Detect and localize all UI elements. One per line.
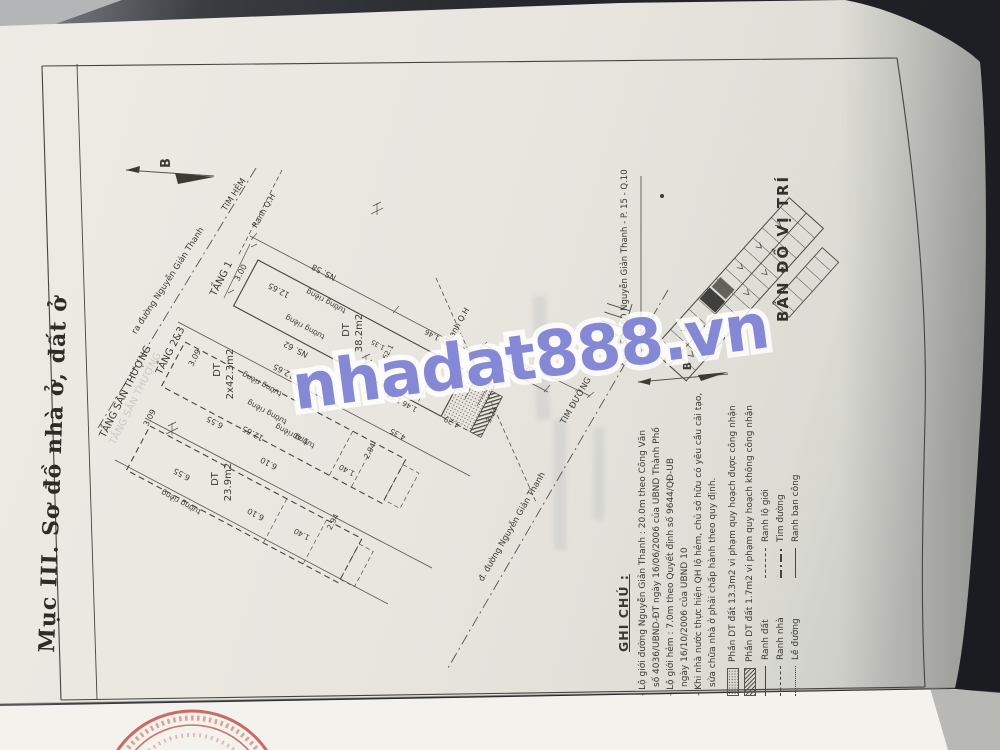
legend-label: Ranh đất bbox=[761, 578, 771, 660]
legend-label: Tim đường bbox=[776, 494, 786, 542]
area-value-f23: 2x42.3m2 bbox=[225, 349, 236, 400]
area-dt-fst: DT bbox=[210, 471, 221, 486]
legend-label: Ranh nhà bbox=[776, 578, 786, 660]
notes-title: GHI CHÚ : bbox=[616, 382, 631, 652]
house-number-line: NHÀ SỐ : 60 Nguyễn Giản Thanh - P. 15 - … bbox=[620, 166, 630, 366]
legend-line-dash bbox=[780, 666, 783, 696]
note-line: - Lộ giới hẻm : 7.0m theo Quyết định số … bbox=[664, 382, 678, 696]
paper-edge-shade bbox=[830, 0, 1000, 750]
legend-line-dashdot bbox=[780, 548, 781, 578]
area-value-f1: 38.2m2 bbox=[354, 314, 365, 352]
north-label: B bbox=[159, 158, 174, 168]
photo-of-land-document: B TIM HẺM ra đường Nguyễn Giản Thanh Ran… bbox=[0, 0, 1000, 750]
legend-label: Phần DT đất 13.3m2 vi phạm quy hoạch đượ… bbox=[728, 405, 738, 662]
notes-block: GHI CHÚ : - Lộ giới đường Nguyễn Giản Th… bbox=[616, 382, 806, 696]
area-dt-f1: DT bbox=[341, 322, 352, 337]
legend-line-dashed bbox=[765, 548, 768, 578]
legend-line-thin bbox=[795, 548, 798, 578]
note-line: - Khi nhà nước thực hiện QH lộ hẻm, chủ … bbox=[692, 382, 706, 696]
legend-label: Lề đường bbox=[791, 578, 801, 660]
document-drawing: B TIM HẺM ra đường Nguyễn Giản Thanh Ran… bbox=[0, 0, 1000, 750]
area-value-fst: 23.9m2 bbox=[223, 463, 234, 501]
legend-label: Ranh ban công bbox=[791, 474, 801, 542]
note-line: sửa chữa nhà ở phải chấp hành theo quy đ… bbox=[706, 382, 720, 696]
note-line: số 4036/UBND-ĐT ngày 16/06/2006 của UBND… bbox=[650, 382, 664, 696]
note-line: - Lộ giới đường Nguyễn Giản Thanh : 20.0… bbox=[636, 382, 650, 696]
legend-swatch-hatched-area bbox=[744, 668, 756, 696]
legend-swatch-dotted-area bbox=[727, 668, 739, 696]
legend-line-solid bbox=[765, 666, 768, 696]
area-dt-f23: DT bbox=[212, 362, 223, 377]
map-north-label: B bbox=[681, 362, 694, 370]
location-map-title: BẢN ĐỒ VỊ TRÍ bbox=[774, 175, 792, 322]
legend-label: Ranh lộ giới bbox=[761, 489, 771, 542]
legend-label: Phần DT đất 1.7m2 vi phạm quy hoạch khôn… bbox=[745, 405, 755, 662]
legend: Phần DT đất 13.3m2 vi phạm quy hoạch đượ… bbox=[727, 382, 801, 696]
note-line: ngày 16/10/2006 của UBND 10 bbox=[678, 382, 692, 696]
legend-line-dotted bbox=[795, 666, 798, 696]
